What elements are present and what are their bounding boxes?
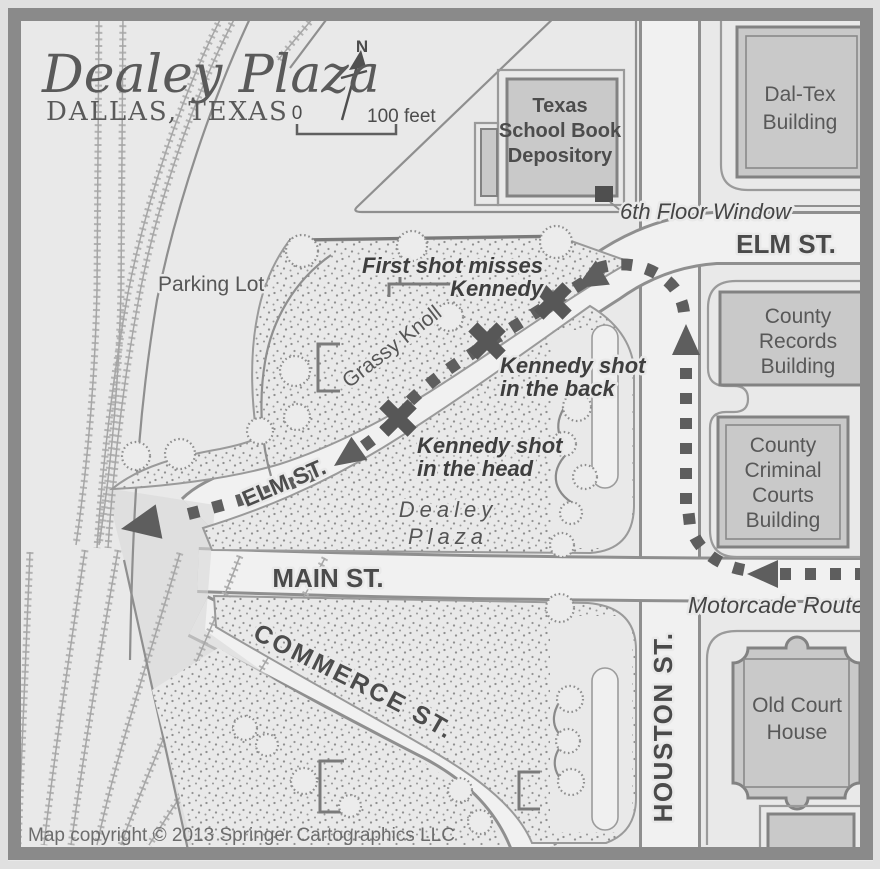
tree: [233, 716, 257, 740]
tree: [560, 502, 582, 524]
depository-label-1: Texas: [532, 95, 587, 117]
county-records-label-3: Building: [761, 355, 836, 378]
tree: [165, 439, 195, 469]
old-courthouse-label-2: House: [767, 721, 828, 744]
reflecting-pool-south: [592, 668, 618, 830]
depository-annex: [481, 129, 497, 196]
daltex-label-2: Building: [763, 111, 838, 134]
county-courts-label-2: Criminal: [744, 459, 821, 482]
tree: [573, 465, 597, 489]
tree: [291, 768, 317, 794]
back-shot-label-1: Kennedy shot: [500, 353, 647, 378]
elm-st-east-label: ELM ST.: [736, 229, 836, 259]
tree: [558, 769, 584, 795]
scale-zero-label: 0: [292, 103, 303, 124]
depository-label-3: Depository: [508, 145, 613, 167]
county-courts-label-4: Building: [746, 509, 821, 532]
county-courts-label-3: Courts: [752, 484, 814, 507]
tree: [280, 356, 310, 386]
depository-label-2: School Book: [499, 120, 622, 142]
tree: [546, 594, 574, 622]
tree: [556, 729, 580, 753]
county-records-label-2: Records: [759, 330, 837, 353]
tree: [256, 734, 278, 756]
tree: [247, 418, 273, 444]
first-shot-label-1: First shot misses: [362, 253, 543, 278]
tree: [550, 533, 574, 557]
back-shot-label-2: in the back: [500, 376, 617, 401]
parking-lot-label: Parking Lot: [158, 273, 264, 296]
motorcade-route-label: Motorcade Route: [688, 592, 864, 618]
houston-st-label: HOUSTON ST.: [648, 632, 678, 823]
dealey-plaza-label-1: Dealey: [399, 497, 497, 522]
tree: [448, 778, 472, 802]
dealey-plaza-map: Texas School Book Depository Dal-Tex Bui…: [0, 0, 880, 869]
sixth-floor-window-label: 6th Floor Window: [620, 199, 793, 224]
scale-distance-label: 100 feet: [367, 106, 436, 127]
tree: [468, 810, 492, 834]
tree: [540, 226, 572, 258]
old-courthouse-label-1: Old Court: [752, 694, 842, 717]
tree: [122, 442, 150, 470]
dealey-plaza-label-2: Plaza: [408, 524, 488, 549]
reflecting-pool-north: [592, 325, 618, 488]
building-county-courts: County Criminal Courts Building: [718, 417, 848, 547]
tree: [557, 686, 583, 712]
map-title: Dealey Plaza: [41, 45, 380, 105]
county-courts-label-1: County: [750, 434, 817, 457]
tree: [286, 235, 318, 267]
sixth-floor-window-marker: [595, 186, 613, 202]
tree: [339, 795, 361, 817]
map-canvas: Texas School Book Depository Dal-Tex Bui…: [0, 0, 880, 869]
map-subtitle: DALLAS, TEXAS: [46, 97, 289, 127]
head-shot-label-2: in the head: [417, 456, 534, 481]
building-daltex: Dal-Tex Building: [721, 12, 866, 190]
daltex-label-1: Dal-Tex: [764, 83, 836, 106]
first-shot-label-2: Kennedy: [450, 276, 545, 301]
county-records-label-1: County: [765, 305, 832, 328]
main-st-label: MAIN ST.: [272, 563, 383, 593]
head-shot-label-1: Kennedy shot: [417, 433, 564, 458]
tree: [284, 404, 310, 430]
copyright-label: Map copyright © 2013 Springer Cartograph…: [28, 825, 455, 846]
